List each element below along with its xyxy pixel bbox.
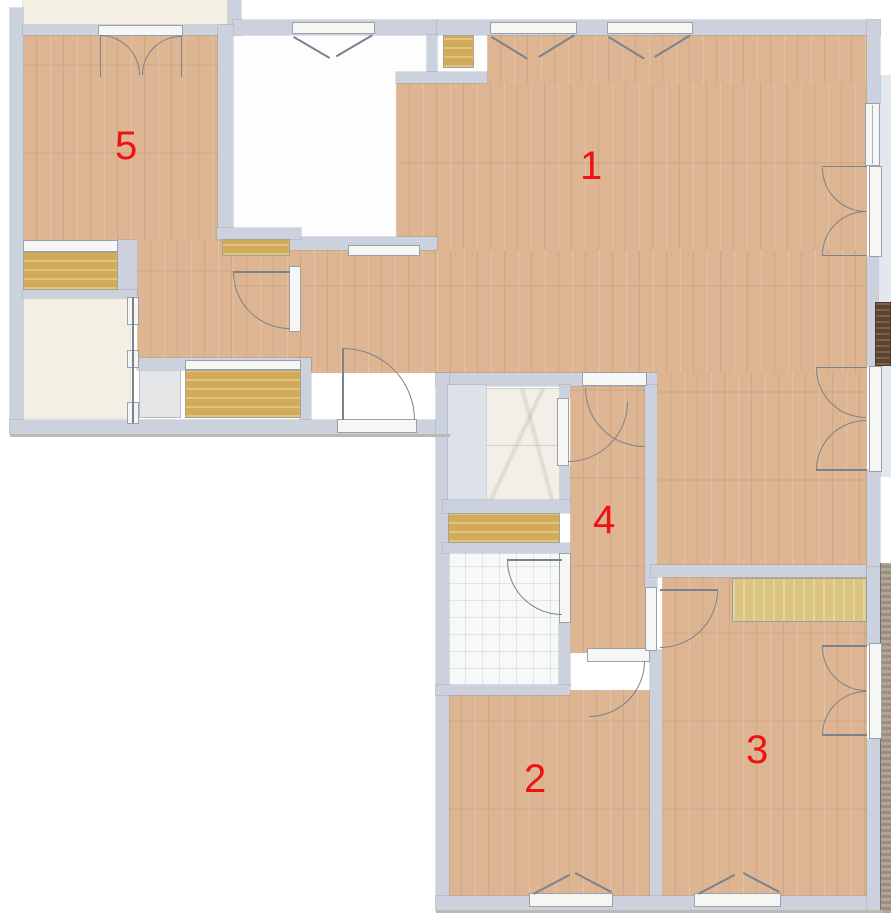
french-door1-sill	[869, 166, 882, 257]
wall-right-c	[867, 470, 880, 577]
room1-window-1	[490, 22, 577, 34]
wall-counter2-right	[300, 358, 311, 420]
room3-french-door-sill	[869, 643, 882, 739]
wall-tile-right	[559, 623, 570, 686]
entry-door-leaf	[342, 348, 344, 420]
room3-door-leaf	[660, 589, 718, 591]
counter-left-lower	[185, 370, 301, 418]
right-wall-window-mullion	[872, 105, 873, 164]
wall-wing-bottom	[436, 896, 880, 910]
cabinet-room1-niche	[443, 35, 474, 68]
bathroom-marble-floor	[486, 388, 560, 502]
hall-door-leaf	[233, 271, 290, 273]
balcony-top	[23, 0, 228, 25]
counter-lower-frame	[185, 360, 301, 370]
entry-door-bar	[337, 419, 417, 433]
room4-bottom-door-bar	[587, 648, 650, 662]
wall-below-shelf	[443, 543, 570, 553]
wall-right-a	[867, 20, 880, 103]
wall-right-room3-lower	[867, 739, 880, 910]
balcony-door-bar	[98, 25, 183, 36]
room1-window-2	[607, 22, 693, 34]
wall-niche-step	[396, 72, 487, 83]
bath-door-jamb	[557, 398, 569, 466]
room-1-label: 1	[580, 146, 602, 186]
whiteroom-top-window	[292, 22, 375, 34]
room3-french-frame-top	[822, 645, 867, 647]
wall-bath-block	[448, 385, 486, 503]
counter-upper-frame	[23, 240, 118, 252]
utility-door-leaf	[507, 559, 562, 561]
room3-door-jamb	[645, 587, 657, 651]
room4-top-door-bar	[582, 372, 647, 386]
shadow-wing-bottom	[436, 910, 883, 913]
wall-room2-room3	[650, 650, 662, 896]
wall-left-outer	[10, 8, 23, 433]
wardrobe-room3	[732, 578, 867, 622]
wall-right-room3-upper	[867, 567, 880, 645]
room-5-label: 5	[115, 126, 137, 166]
wall-room3-top	[651, 565, 867, 577]
white-room	[233, 72, 396, 237]
wall-bath-right-lower	[560, 466, 570, 503]
wall-storage-top	[23, 290, 137, 298]
room-3-label: 3	[746, 730, 768, 770]
storage-slider-track	[132, 297, 134, 423]
room-1-floor	[396, 83, 867, 250]
wall-below-marble	[443, 500, 570, 513]
floor-plan: 1 2 3 4 5	[0, 0, 891, 915]
dark-wood-unit-right	[875, 302, 891, 366]
room2-bottom-window	[529, 893, 613, 907]
wall-room5-right	[218, 25, 233, 240]
whiteroom-bottom-window	[348, 245, 420, 256]
wall-whiteroom-right	[427, 35, 437, 73]
wall-below-tile	[436, 685, 570, 695]
counter-left-upper	[23, 252, 118, 290]
room-1-floor-lower	[437, 250, 867, 373]
room-2-floor	[448, 690, 650, 896]
storage-room-floor	[23, 297, 130, 418]
balcony-door-frame-right	[181, 36, 183, 77]
room3-french-frame-bottom	[822, 734, 867, 736]
room3-bottom-window	[694, 893, 781, 907]
wall-bath-right-upper	[560, 385, 570, 398]
french-door1-frame-bottom	[822, 255, 867, 257]
wall-cabinet-niche-top	[217, 228, 301, 239]
hall-door-jamb	[289, 266, 301, 332]
shelf-above-utility	[448, 513, 560, 543]
landing-square	[139, 368, 181, 418]
wall-room4-right	[645, 385, 657, 587]
room-4-label: 4	[593, 500, 615, 540]
cabinet-hall-niche	[222, 239, 290, 256]
white-room-upper	[233, 35, 427, 72]
balcony-door-frame-left	[100, 35, 102, 77]
french-door2-frame-bottom	[816, 469, 867, 471]
french-door1-frame-top	[822, 166, 867, 168]
french-door2-frame-top	[816, 367, 867, 369]
room-1-floor-top	[487, 33, 867, 83]
room-2-label: 2	[524, 759, 546, 799]
wall-counter-niche	[118, 240, 137, 297]
french-door2-sill	[869, 366, 882, 472]
shadow-leftwing-bottom	[10, 434, 450, 437]
hallway-floor-left	[137, 240, 233, 358]
